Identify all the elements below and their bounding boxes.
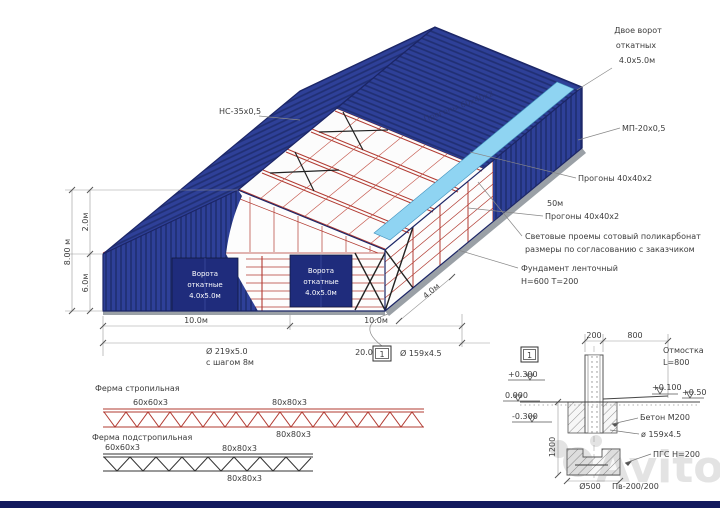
gate-left-label-3: 4.0х5.0м [189, 292, 221, 300]
detail-dim-800: 800 [627, 331, 642, 340]
sub-truss-title: Ферма подстропильная [92, 433, 192, 442]
dim-width-right: 10.0м [364, 316, 388, 325]
annotation-gates-2: откатных [616, 41, 656, 50]
gate-right-label-2: откатные [303, 278, 338, 286]
rafter-truss-label-right: 80х80х3 [272, 398, 307, 407]
rafter-truss-drawing [103, 409, 424, 427]
gate-left-label-2: откатные [187, 281, 222, 289]
dim-pipe-spec: Ø 159х4.5 [400, 348, 442, 358]
watermark-brand: Avito [596, 442, 720, 493]
detail-otmostka-2: L=800 [663, 358, 689, 367]
dim-pile-step: с шагом 8м [206, 358, 254, 367]
detail-pipe-label: ø 159х4.5 [641, 430, 681, 439]
dim-width-left: 10.0м [184, 316, 208, 325]
dim-height-upper: 2.0м [81, 213, 90, 232]
detail-level-plus50: +0.50 [682, 388, 707, 397]
detail-marker-box: 1 [521, 347, 538, 362]
sliding-gate-left: Ворота откатные 4.0х5.0м [172, 258, 238, 311]
annotation-foundation-2: Н=600 Т=200 [521, 277, 578, 286]
detail-otmostka-1: Отмостка [663, 346, 704, 355]
gate-right-label-1: Ворота [308, 267, 334, 275]
detail-level-minus300: -0.300 [512, 412, 538, 421]
sub-truss-drawing [103, 454, 313, 471]
annotation-foundation-1: Фундамент ленточный [521, 264, 618, 273]
building-isometric: Ворота откатные 4.0х5.0м Ворота откатные… [103, 27, 586, 316]
watermark: Avito [550, 435, 720, 493]
truss-diagrams: Ферма стропильная 60х60х3 80х80х3 80х80х… [92, 384, 424, 483]
section-marker-box: 1 [373, 346, 391, 361]
sub-truss-label-left: 60х60х3 [105, 443, 140, 452]
detail-level-zero: 0.000 [505, 391, 528, 400]
annotation-length-50m: 50м [547, 199, 563, 208]
rafter-truss-title: Ферма стропильная [95, 384, 180, 393]
detail-concrete-label: Бетон М200 [640, 413, 690, 422]
annotation-purlins-top: Прогоны 40х40х2 [578, 174, 652, 183]
detail-level-plus300: +0.300 [508, 370, 538, 379]
gate-left-label-1: Ворота [192, 270, 218, 278]
section-marker-label: 1 [379, 350, 384, 359]
watermark-logo-circle-medium [550, 440, 568, 458]
otmostka-surface [603, 396, 668, 399]
dim-height-total: 8.00 м [63, 239, 72, 265]
construction-drawing: Ворота откатные 4.0х5.0м Ворота откатные… [0, 0, 720, 508]
detail-marker-label: 1 [527, 351, 532, 360]
sliding-gate-right: Ворота откатные 4.0х5.0м [290, 255, 352, 307]
bottom-edge-bar [0, 501, 720, 508]
sub-truss-label-right: 80х80х3 [222, 444, 257, 453]
column-pipe [585, 355, 603, 433]
annotation-ns-profile: НС-35х0,5 [219, 107, 261, 116]
detail-dim-200: 200 [586, 331, 601, 340]
dim-height-lower: 6.0м [81, 274, 90, 293]
detail-level-plus100: +0.100 [652, 383, 682, 392]
annotation-gates-3: 4.0х5.0м [619, 56, 655, 65]
rafter-truss-label-bottom: 80х80х3 [276, 430, 311, 439]
gate-right-label-3: 4.0х5.0м [305, 289, 337, 297]
sub-truss-label-bottom: 80х80х3 [227, 474, 262, 483]
dim-pile-spec: Ø 219х5.0 [206, 346, 248, 356]
annotation-mp-profile: МП-20х0,5 [622, 124, 665, 133]
rafter-truss-label-left: 60х60х3 [133, 398, 168, 407]
annotation-purlins-mid: Прогоны 40х40х2 [545, 212, 619, 221]
annotation-skylight-2: размеры по согласованию с заказчиком [525, 245, 695, 254]
warehouse-drawing-svg: Ворота откатные 4.0х5.0м Ворота откатные… [0, 0, 720, 508]
annotation-gates-1: Двое ворот [614, 26, 662, 35]
annotation-skylight-1: Световые проемы сотовый поликарбонат [525, 232, 701, 241]
